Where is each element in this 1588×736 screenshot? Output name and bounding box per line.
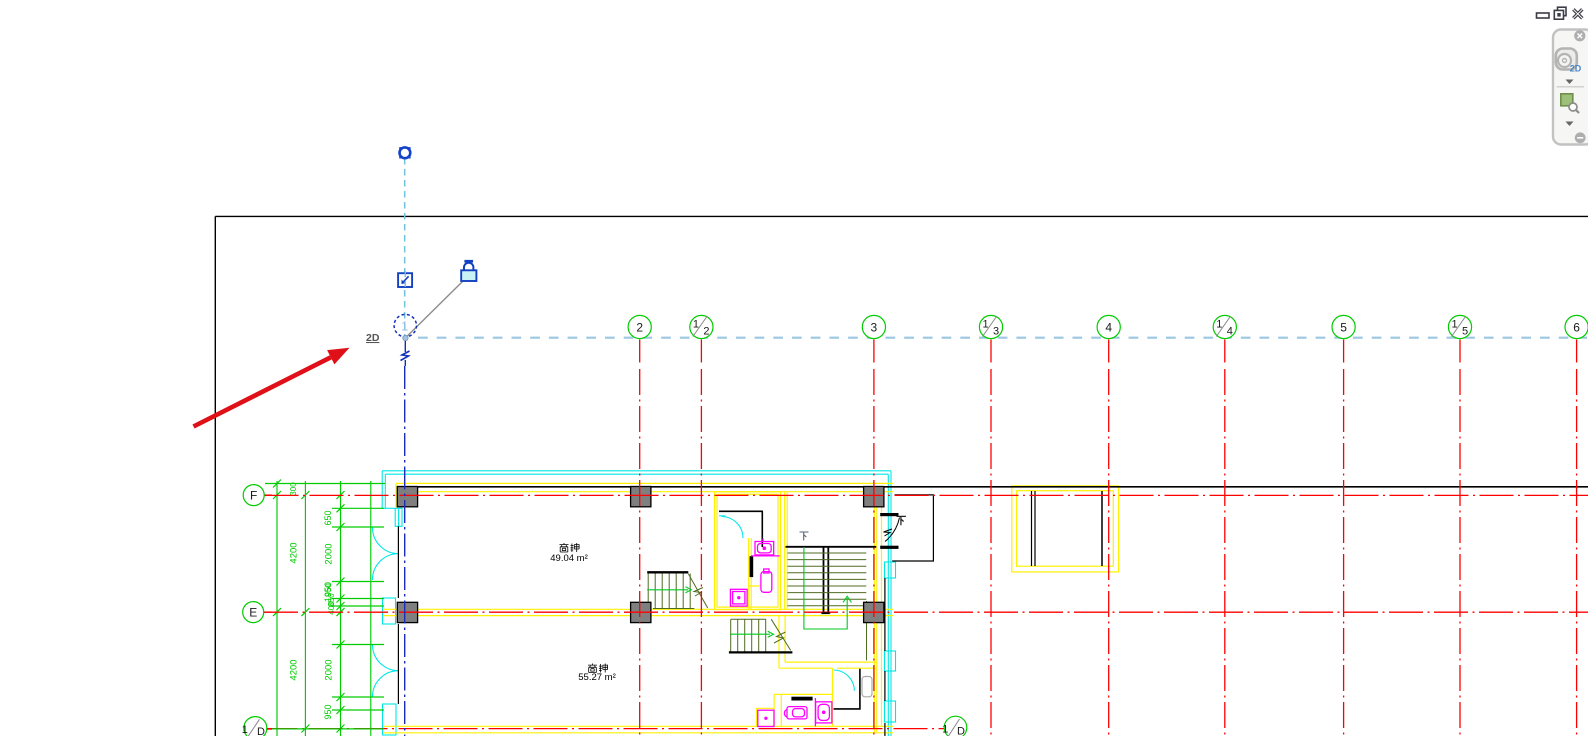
svg-text:49.04 m²: 49.04 m² <box>550 553 588 564</box>
svg-text:1: 1 <box>693 319 699 331</box>
svg-text:1: 1 <box>942 724 948 736</box>
svg-text:950: 950 <box>324 583 333 597</box>
svg-text:D: D <box>257 726 265 736</box>
svg-text:2D: 2D <box>1570 64 1582 74</box>
svg-text:3: 3 <box>993 326 999 338</box>
svg-text:4200: 4200 <box>289 659 300 680</box>
svg-text:1: 1 <box>982 319 988 331</box>
svg-text:4: 4 <box>1227 326 1233 338</box>
svg-text:2000: 2000 <box>324 543 335 564</box>
svg-text:4200: 4200 <box>289 542 300 563</box>
svg-text:F: F <box>250 488 257 502</box>
svg-text:55.27 m²: 55.27 m² <box>578 672 616 683</box>
svg-text:1: 1 <box>1451 319 1457 331</box>
svg-text:1: 1 <box>401 319 408 334</box>
svg-text:D: D <box>957 726 965 736</box>
svg-text:2000: 2000 <box>324 659 335 680</box>
svg-text:5: 5 <box>1340 320 1347 334</box>
svg-text:5: 5 <box>1462 326 1468 338</box>
svg-text:300: 300 <box>289 482 298 496</box>
svg-text:6: 6 <box>1573 320 1580 334</box>
svg-text:2: 2 <box>636 320 643 334</box>
svg-text:2D: 2D <box>366 332 380 344</box>
svg-text:650: 650 <box>323 510 333 525</box>
svg-text:2: 2 <box>703 326 709 338</box>
svg-text:1: 1 <box>1216 319 1222 331</box>
svg-text:1: 1 <box>242 724 248 736</box>
svg-text:E: E <box>249 605 257 619</box>
svg-text:950: 950 <box>323 704 333 719</box>
svg-text:3: 3 <box>871 320 878 334</box>
svg-text:4: 4 <box>1105 320 1112 334</box>
